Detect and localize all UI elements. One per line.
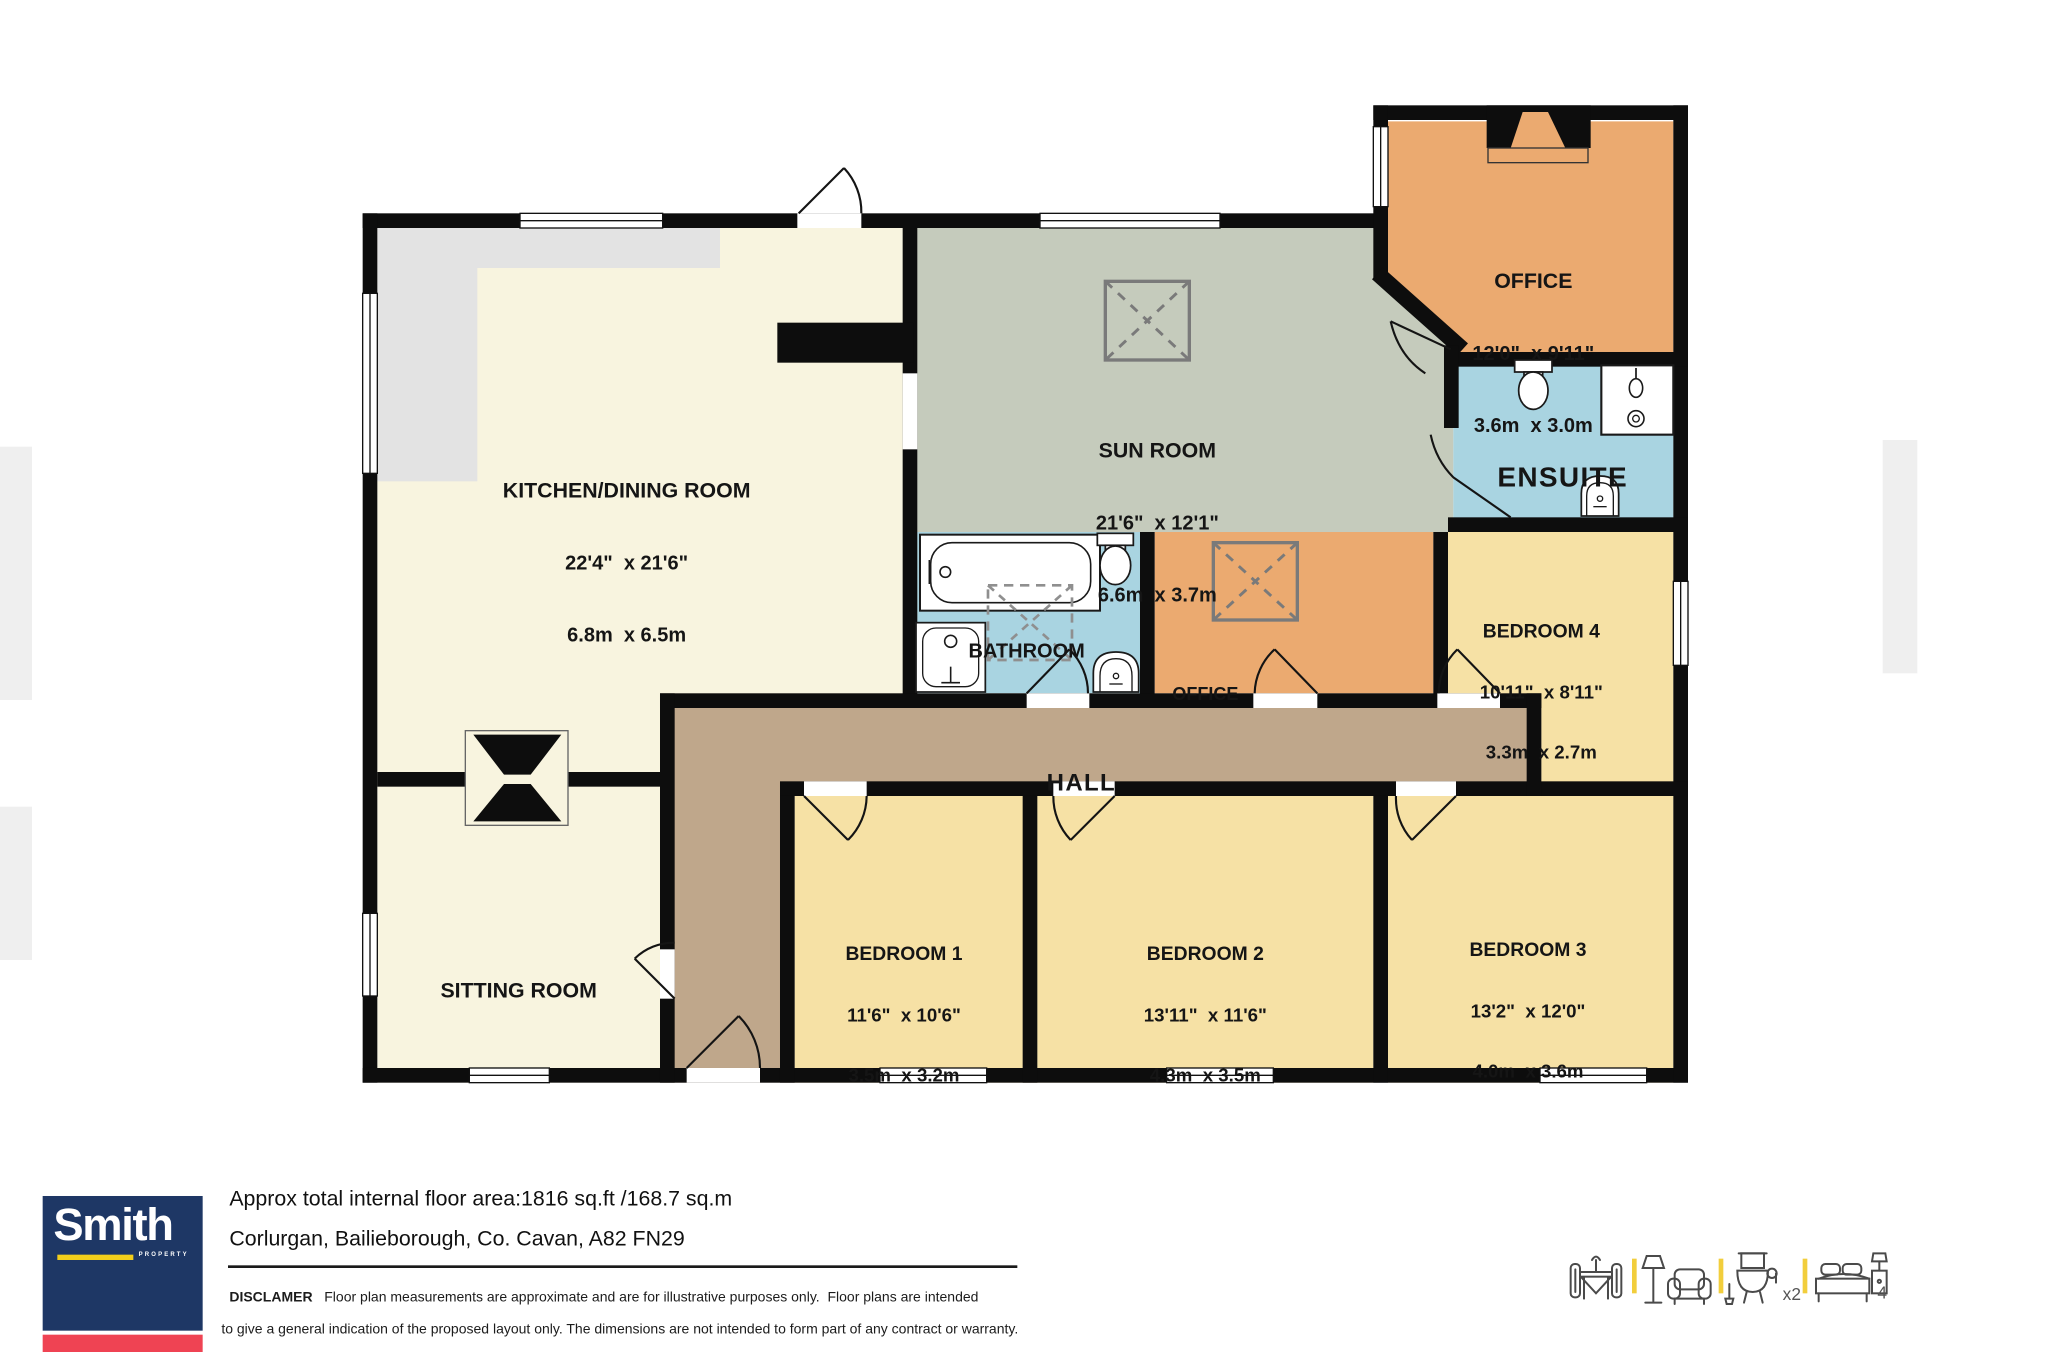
fireplace-icon xyxy=(465,731,568,826)
footer-divider xyxy=(228,1265,1017,1268)
room-label-bedroom1: BEDROOM 1 11'6" x 10'6" 3.5m x 3.2m xyxy=(845,905,962,1125)
legend-divider xyxy=(1719,1259,1724,1294)
room-label-bedroom3: BEDROOM 3 13'2" x 12'0" 4.0m x 3.6m xyxy=(1469,901,1586,1121)
shower-icon xyxy=(1601,365,1673,434)
address-text: Corlurgan, Bailieborough, Co. Cavan, A82… xyxy=(229,1228,684,1252)
room-label-kitchen: KITCHEN/DINING ROOM 22'4" x 21'6" 6.8m x… xyxy=(503,432,751,696)
room-label-ensuite: ENSUITE xyxy=(1497,428,1628,528)
room-label-sun-room: SUN ROOM 21'6" x 12'1" 6.6m x 3.7m xyxy=(1096,392,1219,656)
room-label-sitting-room: SITTING ROOM xyxy=(440,941,596,1041)
room-label-bedroom4: BEDROOM 4 10'11" x 8'11" 3.3m x 2.7m xyxy=(1480,583,1603,803)
page: KITCHEN/DINING ROOM 22'4" x 21'6" 6.8m x… xyxy=(0,0,2048,1365)
brand-name: Smith xyxy=(53,1200,172,1252)
lamp-armchair-icon xyxy=(1643,1256,1711,1304)
room-label-hall: HALL xyxy=(1047,733,1116,833)
brand-logo-navy: Smith PROPERTY xyxy=(43,1196,203,1331)
room-label-bathroom: BATHROOM xyxy=(969,601,1085,701)
disclaimer-line1: DISCLAMER Floor plan measurements are ap… xyxy=(229,1289,978,1305)
floor-area-text: Approx total internal floor area:1816 sq… xyxy=(229,1188,732,1212)
brand-logo-red-bar xyxy=(43,1335,203,1352)
toilet-count: x2 xyxy=(1783,1284,1801,1304)
brand-logo: Smith PROPERTY xyxy=(43,1196,203,1352)
disclaimer-line2: to give a general indication of the prop… xyxy=(221,1321,1018,1337)
toilet-icon xyxy=(1725,1253,1776,1304)
dining-set-icon xyxy=(1571,1257,1622,1299)
chimney-icon xyxy=(1487,105,1591,162)
legend-divider xyxy=(1632,1259,1637,1294)
disclaimer-title: DISCLAMER xyxy=(229,1289,312,1305)
brand-subtitle: PROPERTY xyxy=(139,1250,189,1257)
shower-tray-icon xyxy=(1093,652,1138,692)
brand-underline xyxy=(57,1255,133,1260)
legend-icons xyxy=(1563,1248,1910,1315)
kitchen-counter xyxy=(377,228,477,481)
bed-count: 4 xyxy=(1877,1283,1887,1303)
bed-icon xyxy=(1816,1253,1887,1301)
room-label-bedroom2: BEDROOM 2 13'11" x 11'6" 4.3m x 3.5m xyxy=(1144,905,1267,1125)
room-label-office-small: OFFICE xyxy=(1172,644,1238,744)
legend-divider xyxy=(1803,1259,1808,1294)
